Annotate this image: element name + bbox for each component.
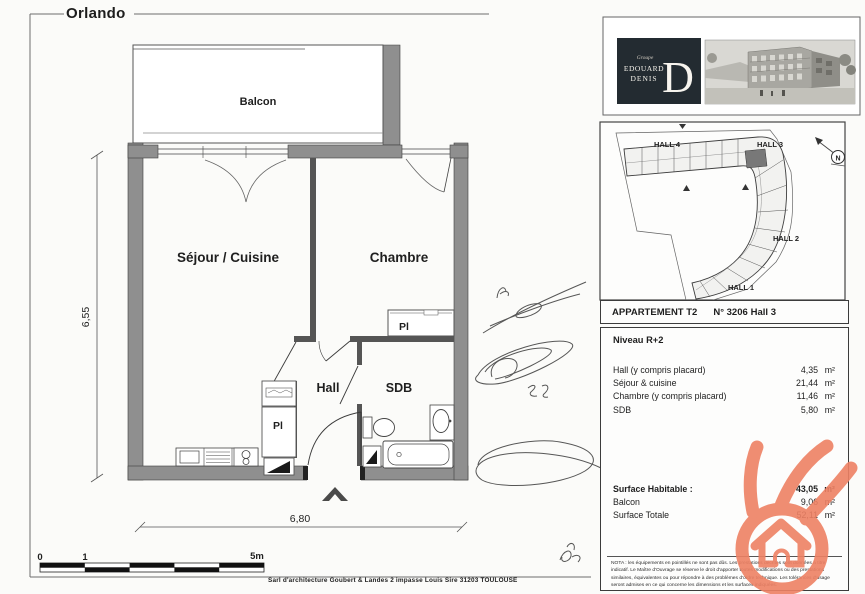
apartment-hall: Hall 3	[751, 307, 776, 318]
balcony: Balcon	[133, 45, 400, 145]
hall4-label: HALL 4	[654, 140, 681, 149]
surface-row: Chambre (y compris placard) 11,46 m²	[613, 390, 835, 403]
kitchen-counter	[176, 448, 258, 466]
nota-disclaimer: NOTA : les équipements en pointillés ne …	[607, 556, 842, 589]
site-plan: HALL 4 HALL 3 HALL 2 HALL 1 N	[600, 122, 845, 306]
dimension-vertical: 6,55	[80, 151, 103, 482]
scanned-floor-plan-page: Balcon	[0, 0, 865, 594]
dimension-height-label: 6,55	[80, 307, 92, 328]
edouard-denis-logo: Groupe EDOUARD DENIS D	[617, 38, 701, 104]
surface-totals: Surface Habitable : 43,05 m² Balcon 9,06…	[613, 483, 835, 523]
north-letter: N	[835, 156, 840, 163]
bathroom-label: SDB	[386, 381, 412, 395]
surface-total-row: Surface Habitable : 43,05 m²	[613, 483, 835, 496]
scale-zero: 0	[37, 552, 42, 563]
hall2-label: HALL 2	[773, 234, 799, 243]
bedroom-closet-label: Pl	[399, 321, 409, 333]
scale-one: 1	[82, 552, 88, 563]
apartment-header-box: APPARTEMENT T2 N° 3206 Hall 3	[600, 300, 849, 324]
level-label: Niveau R+2	[613, 335, 663, 345]
bedroom-label: Chambre	[370, 250, 429, 265]
surface-row: Séjour & cuisine 21,44 m²	[613, 377, 835, 390]
entry-jamb-left	[303, 466, 308, 480]
room-surface-list: Hall (y compris placard) 4,35 m² Séjour …	[613, 364, 835, 417]
hall1-label: HALL 1	[728, 283, 754, 292]
logo-big-d: D	[662, 53, 694, 102]
architect-footer: Sarl d'architecture Goubert & Landes 2 i…	[268, 577, 518, 584]
logo-line2: DENIS	[630, 74, 657, 83]
scale-bar: 0 1 5m	[37, 551, 264, 572]
bathroom-fixtures	[363, 405, 454, 468]
hall-closet: Pl	[262, 381, 296, 475]
surface-total-row: Surface Totale 52,11 m²	[613, 509, 835, 522]
surface-total-row: Balcon 9,06 m²	[613, 496, 835, 509]
hall-closet-label: Pl	[273, 420, 283, 432]
pen-scribbles	[476, 282, 601, 562]
highlighted-unit	[745, 149, 767, 168]
living-window	[158, 146, 288, 202]
apartment-number: N° 3206	[713, 307, 747, 318]
building-photo	[705, 40, 856, 104]
project-title: Orlando	[66, 5, 126, 22]
surface-row: SDB 5,80 m²	[613, 404, 835, 417]
surface-row: Hall (y compris placard) 4,35 m²	[613, 364, 835, 377]
logo-group-word: Groupe	[637, 55, 654, 61]
entry-opening	[307, 465, 361, 481]
living-label: Séjour / Cuisine	[177, 250, 280, 265]
hall-label: Hall	[317, 381, 340, 395]
bedroom-window	[402, 149, 451, 192]
balcony-label: Balcon	[240, 96, 277, 108]
dimension-horizontal: 6,80	[135, 513, 467, 532]
brand-box: Groupe EDOUARD DENIS D	[603, 17, 860, 115]
logo-line1: EDOUARD	[624, 64, 664, 73]
bedroom-closet: Pl	[388, 310, 454, 336]
entry-jamb-right	[360, 466, 365, 480]
apartment-type: APPARTEMENT T2	[612, 307, 697, 318]
surface-info-box: Niveau R+2 Hall (y compris placard) 4,35…	[600, 327, 849, 591]
entrance-arrow	[322, 487, 348, 501]
scale-five: 5m	[250, 551, 264, 562]
dimension-width-label: 6,80	[290, 513, 311, 525]
hall3-label: HALL 3	[757, 140, 783, 149]
